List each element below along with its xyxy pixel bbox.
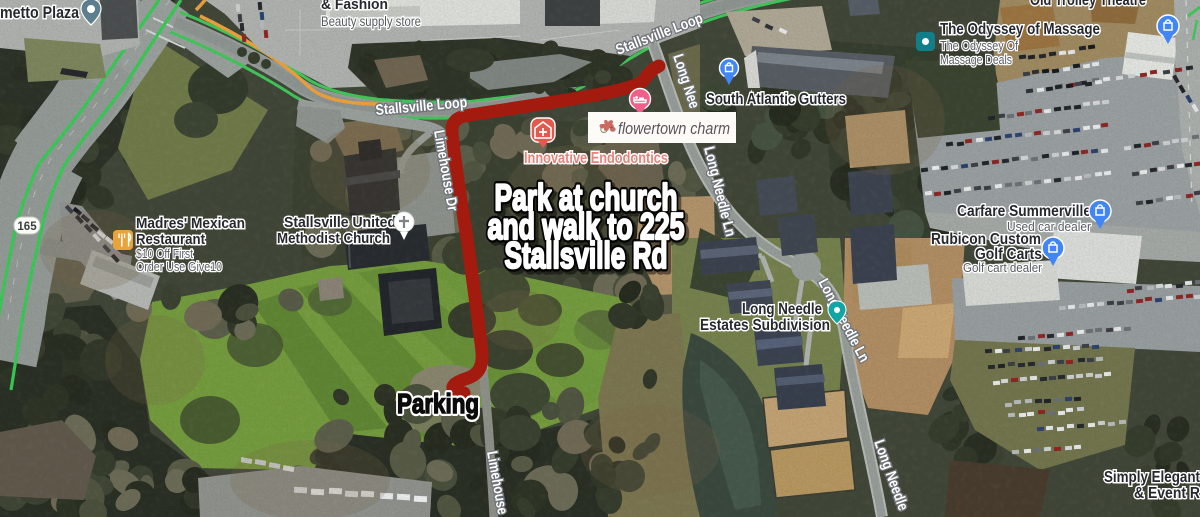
svg-text:Stallsville United: Stallsville United bbox=[284, 214, 396, 231]
svg-text:165: 165 bbox=[17, 221, 37, 233]
svg-text:Old Trolley Theatre: Old Trolley Theatre bbox=[1030, 0, 1146, 9]
svg-text:The Odyssey Of: The Odyssey Of bbox=[940, 38, 1018, 53]
svg-text:$10 Off First: $10 Off First bbox=[136, 247, 193, 261]
svg-text:metto Plaza: metto Plaza bbox=[0, 3, 79, 22]
svg-text:flowertown charm: flowertown charm bbox=[618, 119, 730, 138]
svg-text:Order Use Give10: Order Use Give10 bbox=[136, 260, 222, 274]
svg-text:Madres' Mexican: Madres' Mexican bbox=[136, 215, 245, 232]
svg-text:Estates Subdivision: Estates Subdivision bbox=[700, 317, 830, 334]
svg-text:The Odyssey of Massage: The Odyssey of Massage bbox=[940, 21, 1100, 38]
svg-text:Golf cart dealer: Golf cart dealer bbox=[963, 260, 1043, 275]
svg-text:South Atlantic Gutters: South Atlantic Gutters bbox=[706, 91, 846, 108]
svg-text:Innovative Endodontics: Innovative Endodontics bbox=[524, 150, 668, 167]
svg-text:Parking: Parking bbox=[397, 388, 479, 419]
svg-text:Carfare Summerville: Carfare Summerville bbox=[957, 203, 1091, 220]
svg-text:Long Needle: Long Needle bbox=[742, 301, 822, 318]
svg-text:& Fashion: & Fashion bbox=[321, 0, 388, 13]
svg-text:& Event R: & Event R bbox=[1134, 485, 1200, 502]
svg-text:Simply Elegant: Simply Elegant bbox=[1104, 469, 1200, 486]
svg-text:Restaurant: Restaurant bbox=[136, 231, 205, 248]
svg-text:Massage Deals: Massage Deals bbox=[940, 52, 1012, 67]
svg-text:Methodist Church: Methodist Church bbox=[277, 230, 390, 247]
svg-text:Stallsville Rd: Stallsville Rd bbox=[505, 235, 668, 276]
svg-text:Beauty supply store: Beauty supply store bbox=[321, 14, 421, 29]
